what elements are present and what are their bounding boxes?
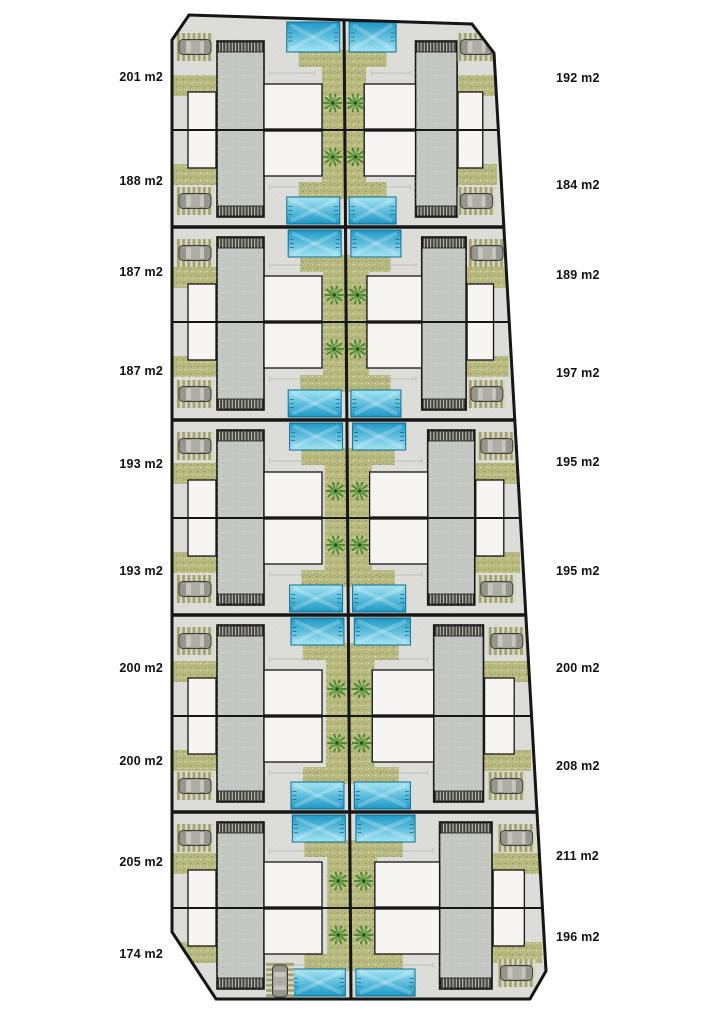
pool [288,230,341,257]
villa-building [434,625,484,802]
stairs [218,791,263,801]
area-label-right-4: 197 m2 [556,366,600,380]
patio [264,472,322,517]
patio [364,131,415,176]
area-label-left-7: 200 m2 [119,661,163,675]
carport [498,959,536,987]
pool [349,197,396,224]
stairs [423,399,465,409]
stairs [218,823,263,833]
area-label-right-1: 192 m2 [556,71,600,85]
patio [264,276,322,321]
area-label-right-5: 195 m2 [556,455,600,469]
villa-building [217,822,264,989]
area-label-left-9: 205 m2 [119,855,163,869]
car-icon [481,439,513,454]
stairs [435,626,483,636]
area-label-right-9: 211 m2 [556,849,599,863]
stairs [218,399,263,409]
area-label-right-10: 196 m2 [556,930,600,944]
area-label-left-8: 200 m2 [119,754,163,768]
patio [264,909,322,954]
pool [351,390,401,417]
carport [176,772,214,800]
patio [264,862,322,907]
patio [370,472,428,517]
car-icon [273,965,288,997]
carport [488,627,526,655]
car-icon [491,634,523,649]
car-icon [501,831,533,846]
stairs [441,823,491,833]
carport [498,824,536,852]
carport [478,432,516,460]
pool [353,585,406,612]
car-icon [179,387,211,402]
car-icon [179,439,211,454]
area-label-left-4: 187 m2 [119,364,163,378]
pool [292,815,345,842]
carport [468,239,506,267]
carport [488,772,526,800]
carport [176,575,214,603]
patio [264,519,322,564]
patio [367,323,422,368]
area-label-left-2: 188 m2 [119,174,163,188]
carport [468,380,506,408]
pool [356,815,415,842]
stairs [218,206,263,216]
pool [288,390,341,417]
carport [458,187,496,215]
patio [264,717,322,762]
pool [291,782,344,809]
villa-building [422,237,466,410]
car-icon [179,634,211,649]
patio [372,670,433,715]
area-label-left-3: 187 m2 [119,265,163,279]
car-icon [179,194,211,209]
car-icon [179,831,211,846]
pool [287,197,340,224]
villa-building [217,625,264,802]
pool [354,782,410,809]
pool [291,618,344,645]
plan-interior [165,10,557,1006]
patio [367,276,422,321]
area-label-left-10: 174 m2 [119,947,163,961]
pool [290,423,343,450]
car-icon [471,387,503,402]
patio [264,84,322,129]
carport [266,962,294,1000]
area-label-right-6: 195 m2 [556,564,600,578]
area-label-left-1: 201 m2 [119,70,163,84]
car-icon [461,194,493,209]
area-label-right-3: 189 m2 [556,268,600,282]
patio [264,323,322,368]
site-plan-page: 201 m2192 m2188 m2184 m2187 m2189 m2187 … [0,0,724,1024]
car-icon [179,582,211,597]
carport [176,432,214,460]
patio [264,670,322,715]
carport [176,627,214,655]
stairs [218,626,263,636]
patio [370,519,428,564]
carport [176,239,214,267]
stairs [218,594,263,604]
stairs [423,238,465,248]
pool [287,22,340,52]
stairs [218,238,263,248]
carport [176,380,214,408]
villa-building [440,822,492,989]
pool [351,230,401,257]
villa-building [217,237,264,410]
area-label-right-2: 184 m2 [556,178,600,192]
carport [176,187,214,215]
carport [478,575,516,603]
stairs [441,978,491,988]
patio [375,862,440,907]
pool [354,618,410,645]
area-label-right-7: 200 m2 [556,661,600,675]
patio [364,84,415,129]
area-label-left-5: 193 m2 [119,457,163,471]
car-icon [481,582,513,597]
patio [375,909,440,954]
area-label-left-6: 193 m2 [119,564,163,578]
site-plan: 201 m2192 m2188 m2184 m2187 m2189 m2187 … [0,0,724,1024]
car-icon [179,246,211,261]
pool [356,969,415,996]
car-icon [471,246,503,261]
stairs [218,978,263,988]
stairs [429,431,474,441]
pool [292,969,345,996]
carport [176,824,214,852]
carport [176,33,214,61]
stairs [417,42,457,52]
patio [264,131,322,176]
car-icon [179,779,211,794]
patio [372,717,433,762]
car-icon [179,40,211,55]
pool [349,22,396,52]
stairs [218,42,263,52]
car-icon [491,779,523,794]
stairs [435,791,483,801]
stairs [218,431,263,441]
stairs [429,594,474,604]
area-label-right-8: 208 m2 [556,759,600,773]
pool [290,585,343,612]
car-icon [501,966,533,981]
stairs [417,206,457,216]
pool [353,423,406,450]
